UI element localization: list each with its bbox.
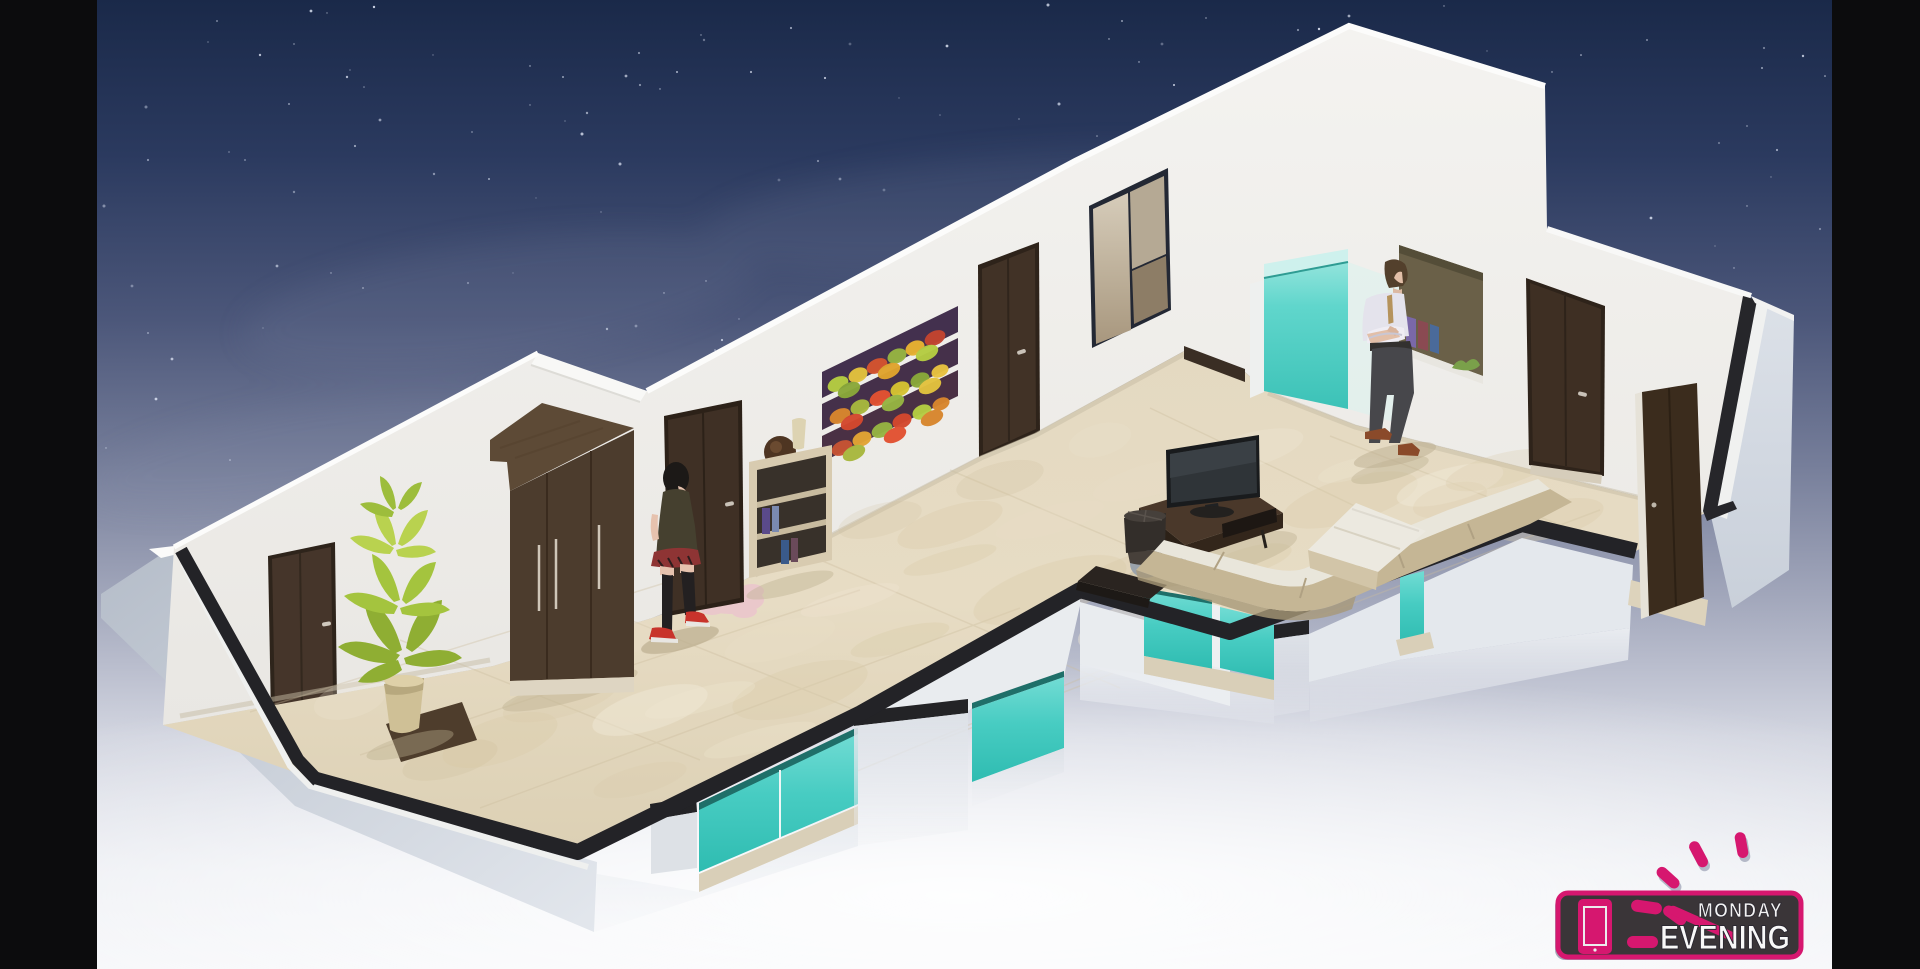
svg-text:EVENING: EVENING xyxy=(1660,919,1790,957)
